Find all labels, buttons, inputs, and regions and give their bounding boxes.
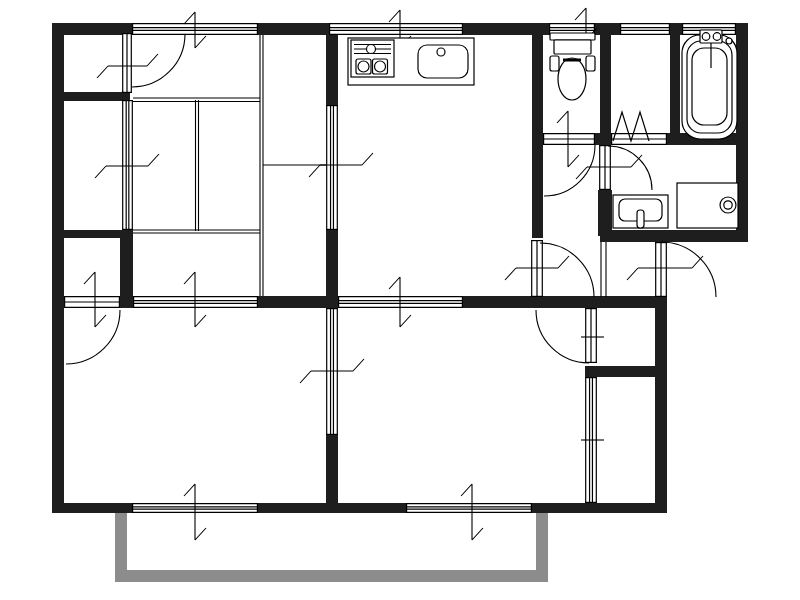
wall-washroom-west	[598, 190, 612, 236]
floorplan-page	[0, 0, 800, 600]
wall-toilet-storage	[600, 24, 611, 133]
wall-storage-bath	[670, 35, 680, 145]
sliding-door-dk-west	[326, 105, 338, 230]
window-top-storage	[620, 23, 670, 35]
wall-closet-w-east	[120, 230, 133, 308]
outer-wall-top-5	[670, 23, 682, 35]
window-top-kitchen	[329, 23, 463, 35]
wall-washroom-south	[600, 230, 748, 242]
balcony-rail-right	[536, 513, 548, 582]
wall-rooms-partition-lower	[326, 435, 338, 503]
wall-dk-west-lower	[326, 230, 338, 296]
fusuma-closet-west	[122, 100, 133, 230]
kitchen-sink	[418, 45, 468, 78]
floorplan-drawing	[0, 0, 800, 600]
outer-wall-bottom-3	[532, 503, 667, 513]
closet-door-leaf-west	[64, 296, 120, 308]
wall-dk-west-upper	[326, 35, 338, 105]
outer-wall-bottom-2	[258, 503, 406, 513]
closet-door-leaf-east	[585, 308, 597, 363]
toilet-door-leaf	[543, 133, 595, 145]
wall-band-east	[463, 296, 667, 308]
closet-door-leaf-northwest	[122, 33, 132, 93]
washing-machine-pan	[677, 183, 738, 228]
outer-wall-bottom-1	[52, 503, 132, 513]
entrance-door-leaf	[655, 242, 667, 297]
wall-band-center	[258, 296, 338, 308]
window-bottom-right	[406, 503, 532, 513]
gas-stove	[351, 40, 394, 77]
wall-kitchen-toilet	[532, 24, 543, 238]
bifold-door-storage	[611, 133, 667, 145]
balcony-rail-bottom	[115, 570, 548, 582]
wall-closet-se-divider	[585, 366, 655, 377]
outer-wall-right-lower	[655, 297, 667, 513]
outer-wall-top-2	[258, 23, 329, 35]
wall-closet-nw-south	[52, 92, 130, 101]
wall-toilet-south-chunk	[595, 133, 611, 145]
washbasin	[613, 195, 668, 228]
bathtub	[682, 30, 737, 139]
